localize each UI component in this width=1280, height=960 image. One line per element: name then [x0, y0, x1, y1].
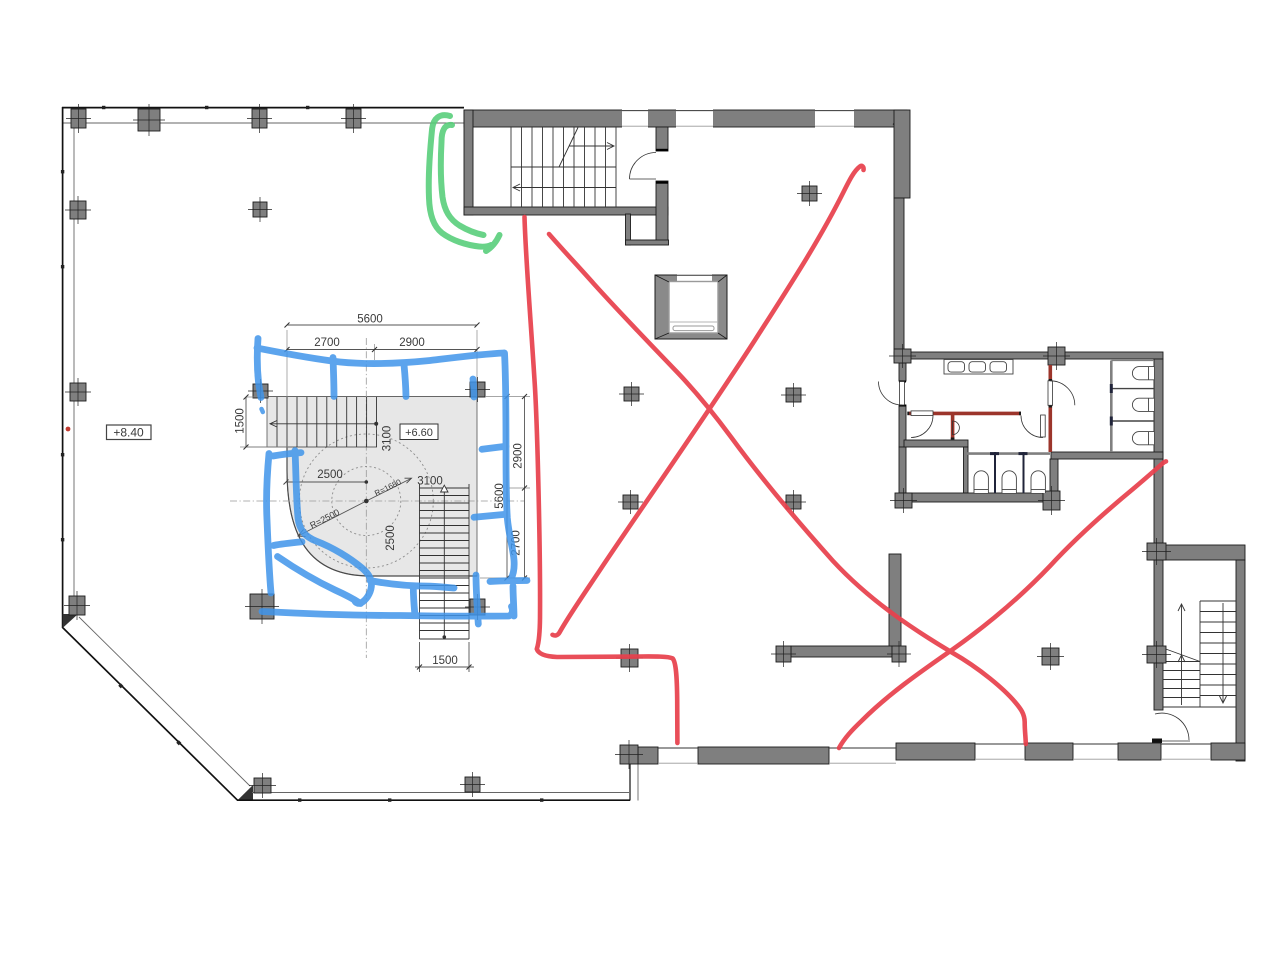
svg-text:3100: 3100 — [417, 476, 443, 488]
svg-text:+6.60: +6.60 — [405, 427, 433, 439]
svg-text:2900: 2900 — [399, 337, 425, 349]
svg-text:1500: 1500 — [235, 408, 247, 434]
svg-text:5600: 5600 — [357, 314, 383, 326]
svg-text:3100: 3100 — [382, 426, 394, 452]
svg-text:+8.40: +8.40 — [113, 426, 144, 440]
svg-text:2500: 2500 — [385, 525, 397, 551]
svg-text:1500: 1500 — [432, 655, 458, 667]
svg-text:2900: 2900 — [513, 443, 525, 469]
svg-text:2500: 2500 — [317, 469, 343, 481]
svg-text:2700: 2700 — [314, 337, 340, 349]
